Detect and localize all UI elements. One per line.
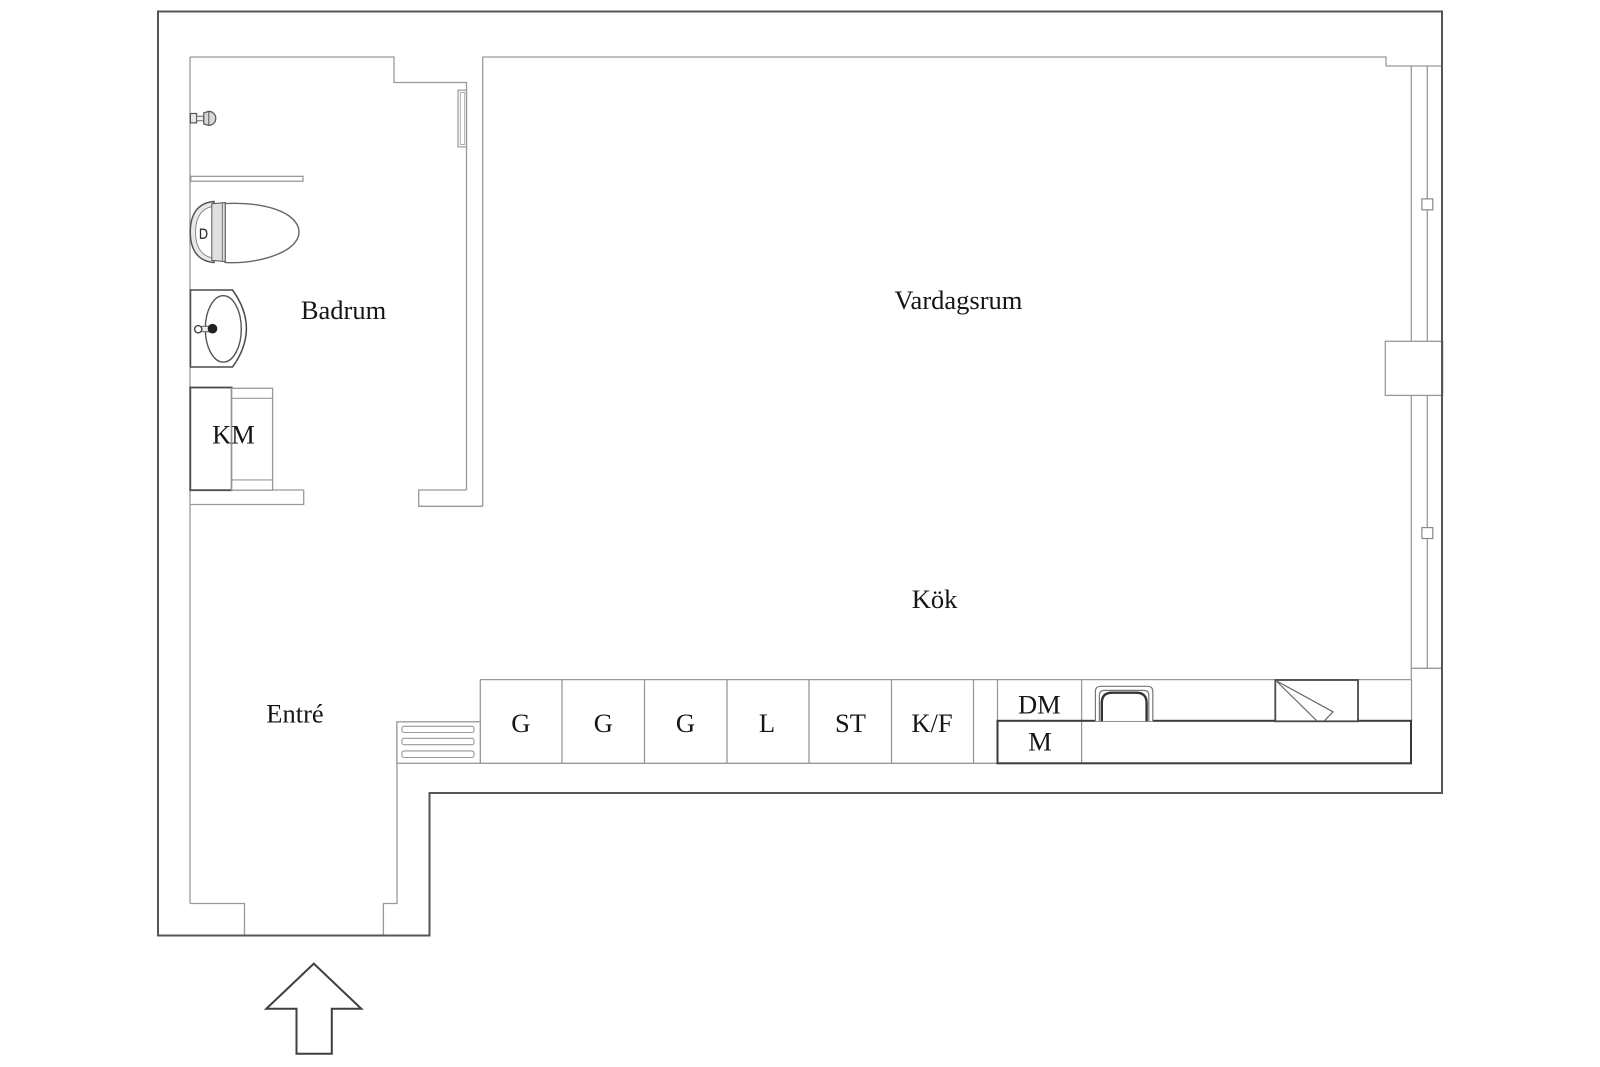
svg-text:Kök: Kök bbox=[912, 584, 958, 614]
svg-text:G: G bbox=[676, 708, 695, 738]
svg-text:G: G bbox=[594, 708, 613, 738]
svg-text:K/F: K/F bbox=[911, 708, 952, 738]
svg-text:ST: ST bbox=[835, 708, 866, 738]
svg-text:L: L bbox=[759, 708, 775, 738]
svg-text:G: G bbox=[511, 708, 530, 738]
svg-text:Entré: Entré bbox=[266, 699, 323, 729]
svg-text:Badrum: Badrum bbox=[301, 295, 387, 325]
svg-text:DM: DM bbox=[1018, 690, 1061, 720]
svg-text:Vardagsrum: Vardagsrum bbox=[894, 285, 1022, 315]
svg-text:M: M bbox=[1028, 727, 1052, 757]
svg-text:KM: KM bbox=[212, 420, 255, 450]
